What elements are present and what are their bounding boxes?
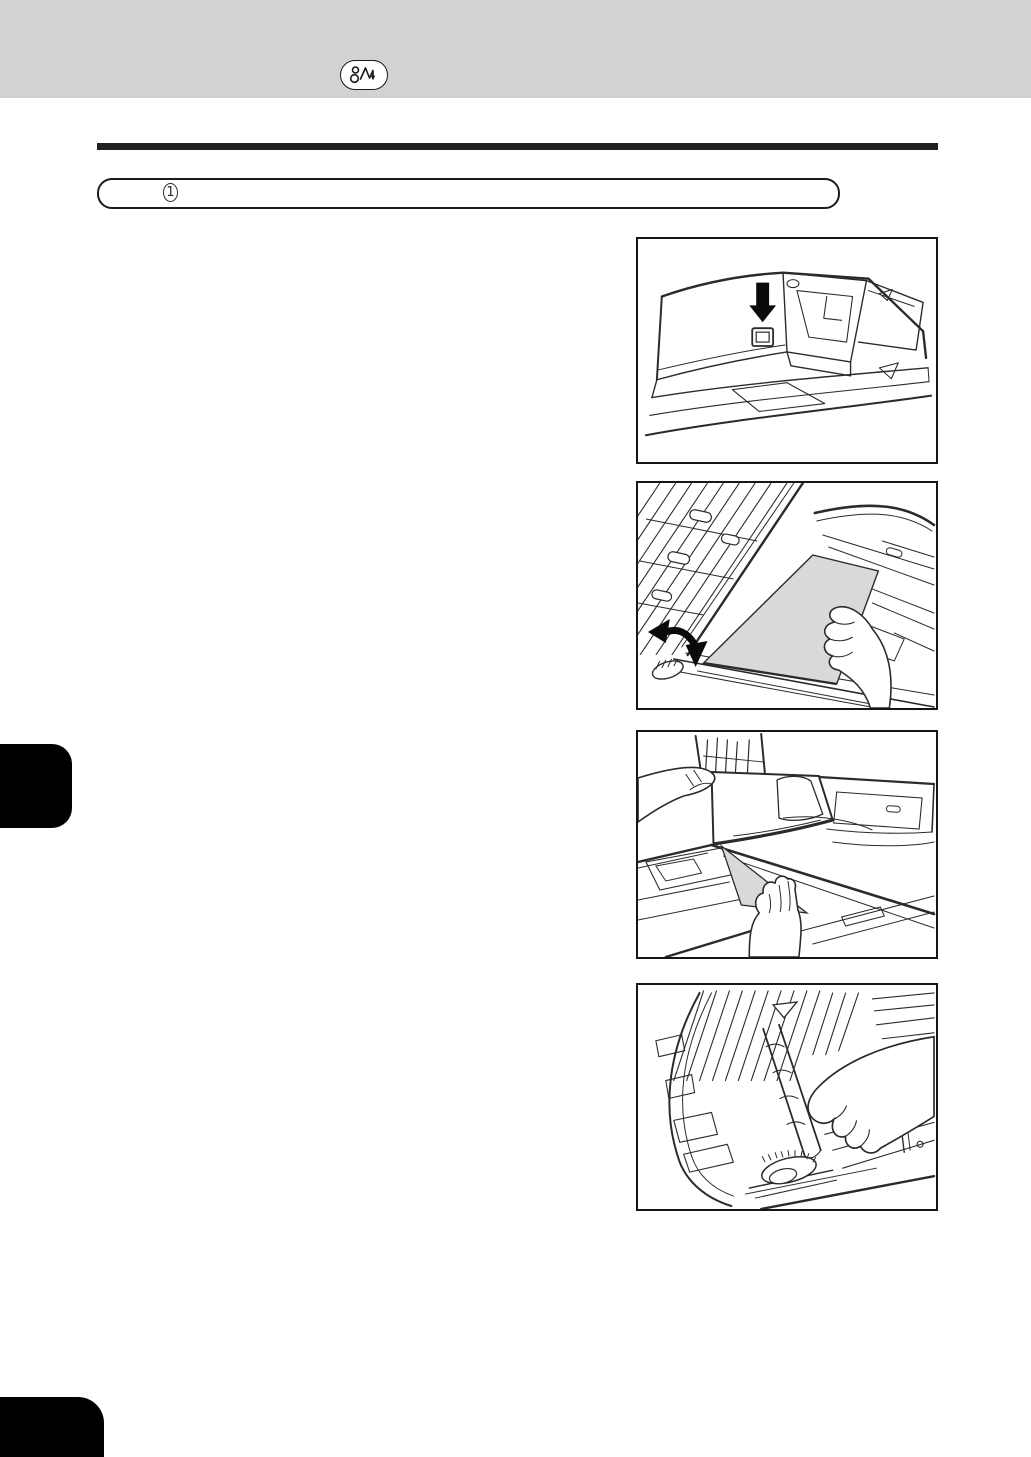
paper-jam-icon	[340, 60, 388, 90]
manual-page: 1	[0, 0, 1031, 1457]
down-arrow-icon	[749, 283, 776, 323]
adf-lifted-illustration	[638, 732, 936, 957]
rotate-dial	[759, 1150, 819, 1188]
section-title-rule	[97, 143, 938, 150]
step-box: 1	[97, 178, 840, 209]
adf-top-view-illustration	[638, 239, 936, 462]
figure-lift-adf-remove-paper	[636, 730, 938, 959]
figure-turn-dial-remove-paper	[636, 983, 938, 1211]
hand-lifting-cover	[638, 767, 715, 822]
feed-roller	[650, 657, 685, 682]
hand-reaching-inside	[808, 1037, 934, 1153]
adf-open-cover-illustration	[638, 483, 936, 708]
figure-open-cover-remove-paper	[636, 481, 938, 710]
figure-press-jam-release-button	[636, 237, 938, 464]
page-number-corner	[0, 1397, 104, 1457]
header-band	[0, 0, 1031, 98]
step-number-badge: 1	[163, 183, 178, 202]
jam-release-button	[752, 328, 773, 346]
paper-jam-icon-glyph	[347, 64, 381, 86]
chapter-tab	[0, 744, 72, 828]
lifted-adf-cover	[712, 772, 873, 844]
machine-interior-illustration	[638, 985, 936, 1209]
